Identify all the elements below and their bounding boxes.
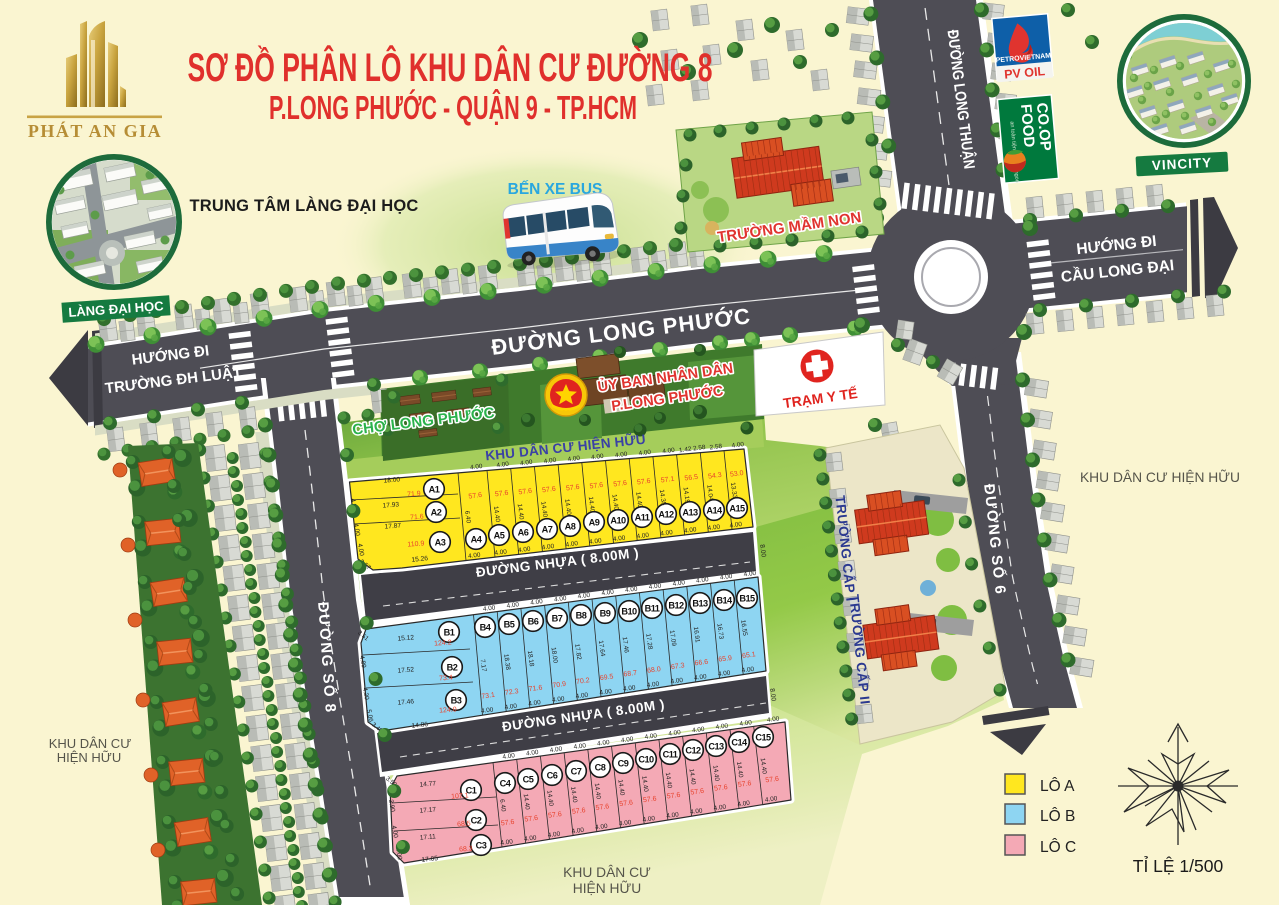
svg-text:C7: C7	[571, 766, 582, 776]
svg-text:A9: A9	[589, 517, 600, 527]
svg-text:A15: A15	[729, 503, 745, 513]
svg-text:C8: C8	[595, 762, 606, 772]
svg-text:B12: B12	[668, 600, 684, 610]
svg-text:107.1: 107.1	[451, 792, 469, 800]
svg-text:P.LONG PHƯỚC - QUẬN 9 - TP.HCM: P.LONG PHƯỚC - QUẬN 9 - TP.HCM	[269, 89, 637, 126]
svg-text:B11: B11	[645, 603, 660, 613]
svg-text:68.3: 68.3	[459, 846, 473, 854]
svg-text:17.87: 17.87	[384, 522, 401, 530]
svg-text:17.46: 17.46	[397, 698, 414, 706]
svg-text:C2: C2	[471, 815, 482, 825]
svg-text:C14: C14	[731, 737, 748, 747]
svg-text:B9: B9	[600, 608, 611, 618]
svg-text:LÔ C: LÔ C	[1040, 839, 1076, 856]
svg-text:68.5: 68.5	[457, 821, 471, 829]
svg-text:A11: A11	[635, 512, 650, 522]
svg-text:C12: C12	[685, 745, 701, 755]
svg-text:C6: C6	[547, 770, 558, 780]
svg-text:A14: A14	[706, 505, 723, 515]
svg-text:15.12: 15.12	[397, 634, 414, 642]
svg-text:B6: B6	[528, 616, 539, 626]
svg-text:71.6: 71.6	[410, 514, 424, 522]
svg-text:TỈ LỆ 1/500: TỈ LỆ 1/500	[1133, 855, 1224, 876]
svg-text:17.52: 17.52	[397, 666, 414, 674]
svg-text:71.9: 71.9	[407, 491, 421, 499]
svg-text:17.93: 17.93	[382, 501, 399, 509]
svg-text:B2: B2	[447, 662, 458, 672]
svg-text:C5: C5	[523, 774, 534, 784]
svg-text:HIỆN HỮU: HIỆN HỮU	[57, 750, 122, 765]
svg-text:C11: C11	[663, 749, 678, 759]
svg-text:C13: C13	[708, 741, 724, 751]
svg-text:B10: B10	[621, 606, 637, 616]
svg-text:SƠ ĐỒ PHÂN LÔ KHU DÂN CƯ ĐƯỜNG: SƠ ĐỒ PHÂN LÔ KHU DÂN CƯ ĐƯỜNG 8	[188, 44, 713, 90]
svg-text:C4: C4	[500, 778, 512, 788]
svg-text:124.2: 124.2	[434, 639, 452, 647]
svg-text:14.77: 14.77	[419, 780, 436, 788]
svg-text:C3: C3	[476, 840, 487, 850]
svg-text:A12: A12	[658, 509, 674, 519]
svg-text:TRUNG TÂM LÀNG ĐẠI HỌC: TRUNG TÂM LÀNG ĐẠI HỌC	[190, 196, 419, 215]
svg-text:VINCITY: VINCITY	[1152, 155, 1213, 173]
svg-text:B5: B5	[504, 619, 515, 629]
svg-text:B14: B14	[716, 595, 733, 605]
svg-text:B7: B7	[552, 613, 563, 623]
svg-text:B13: B13	[692, 598, 708, 608]
svg-text:C15: C15	[755, 732, 771, 742]
svg-text:LÔ B: LÔ B	[1040, 808, 1075, 825]
svg-text:A13: A13	[682, 507, 698, 517]
svg-text:KHU DÂN CƯ: KHU DÂN CƯ	[49, 736, 132, 751]
svg-text:C10: C10	[638, 754, 654, 764]
svg-text:A10: A10	[610, 515, 626, 525]
svg-text:A3: A3	[435, 537, 446, 547]
svg-text:C9: C9	[618, 758, 629, 768]
svg-text:B15: B15	[739, 593, 755, 603]
svg-text:A2: A2	[431, 507, 442, 517]
svg-text:110.9: 110.9	[407, 540, 425, 548]
svg-text:KHU DÂN CƯ HIỆN HỮU: KHU DÂN CƯ HIỆN HỮU	[1080, 469, 1240, 485]
svg-text:HIỆN HỮU: HIỆN HỮU	[573, 880, 642, 896]
svg-text:B3: B3	[451, 695, 462, 705]
svg-text:73.4: 73.4	[439, 675, 453, 683]
svg-text:17.11: 17.11	[420, 833, 437, 841]
svg-text:A8: A8	[565, 521, 576, 531]
svg-text:A5: A5	[494, 530, 505, 540]
svg-text:A6: A6	[518, 527, 529, 537]
svg-text:B4: B4	[480, 622, 492, 632]
svg-text:B1: B1	[444, 627, 455, 637]
svg-text:A1: A1	[429, 484, 440, 494]
svg-text:A7: A7	[542, 524, 553, 534]
svg-text:124.0: 124.0	[439, 706, 457, 714]
svg-text:18.00: 18.00	[383, 476, 400, 484]
svg-text:17.17: 17.17	[419, 806, 436, 814]
svg-text:PHÁT AN GIA: PHÁT AN GIA	[28, 120, 162, 141]
svg-text:KHU DÂN CƯ: KHU DÂN CƯ	[563, 864, 651, 880]
svg-text:LÔ A: LÔ A	[1040, 778, 1075, 795]
svg-text:B8: B8	[576, 610, 587, 620]
svg-text:A4: A4	[471, 534, 483, 544]
